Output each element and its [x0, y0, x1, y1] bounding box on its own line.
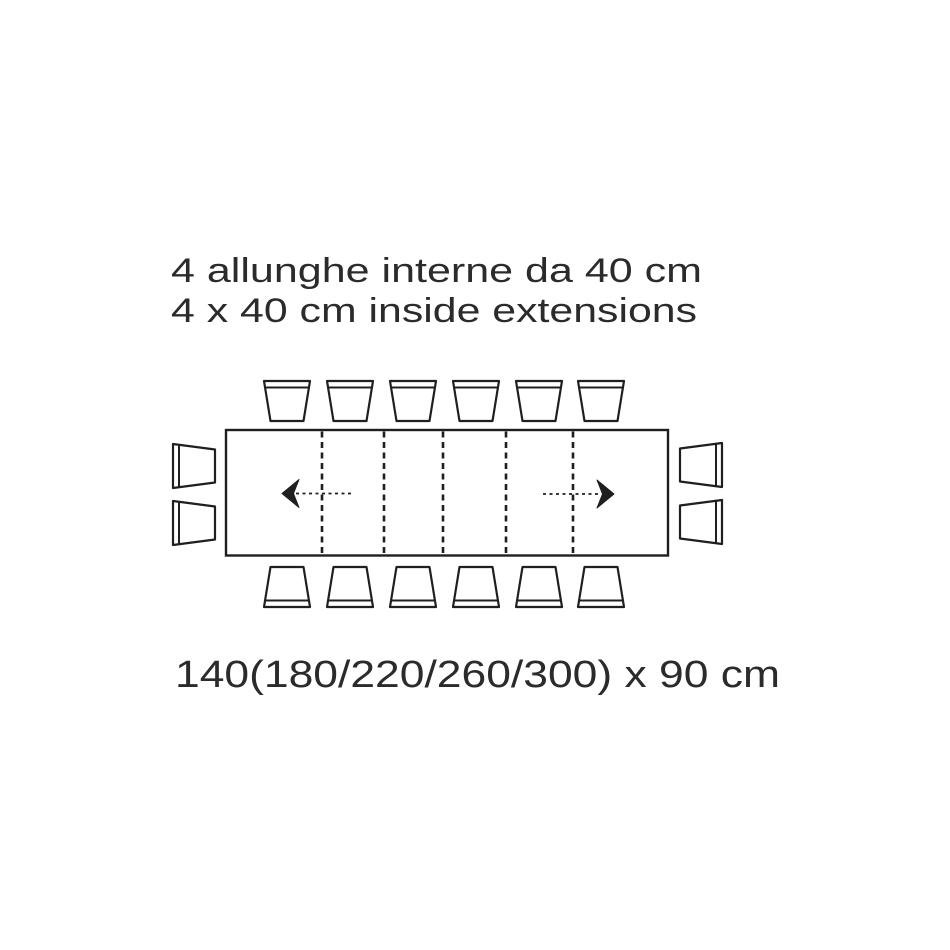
- diagram-canvas: 4 allunghe interne da 40 cm 4 x 40 cm in…: [0, 0, 950, 950]
- chair-bottom-1: [264, 567, 310, 607]
- caption-italian: 4 allunghe interne da 40 cm: [171, 252, 702, 290]
- chair-top-5: [516, 381, 562, 421]
- chair-right-1: [680, 443, 722, 487]
- chair-left-1: [173, 444, 215, 488]
- chair-bottom-3: [390, 567, 436, 607]
- table-extension-diagram: 4 allunghe interne da 40 cm 4 x 40 cm in…: [0, 0, 950, 950]
- chair-top-2: [327, 381, 373, 421]
- chair-bottom-2: [327, 567, 373, 607]
- chair-left-2: [173, 501, 215, 545]
- chair-right-2: [680, 500, 722, 544]
- chair-bottom-5: [516, 567, 562, 607]
- chair-top-6: [578, 381, 624, 421]
- chair-bottom-6: [578, 567, 624, 607]
- dimensions-label: 140(180/220/260/300) x 90 cm: [175, 654, 780, 696]
- chair-top-1: [264, 381, 310, 421]
- chair-top-3: [390, 381, 436, 421]
- chair-bottom-4: [453, 567, 499, 607]
- chair-top-4: [453, 381, 499, 421]
- caption-english: 4 x 40 cm inside extensions: [171, 292, 697, 330]
